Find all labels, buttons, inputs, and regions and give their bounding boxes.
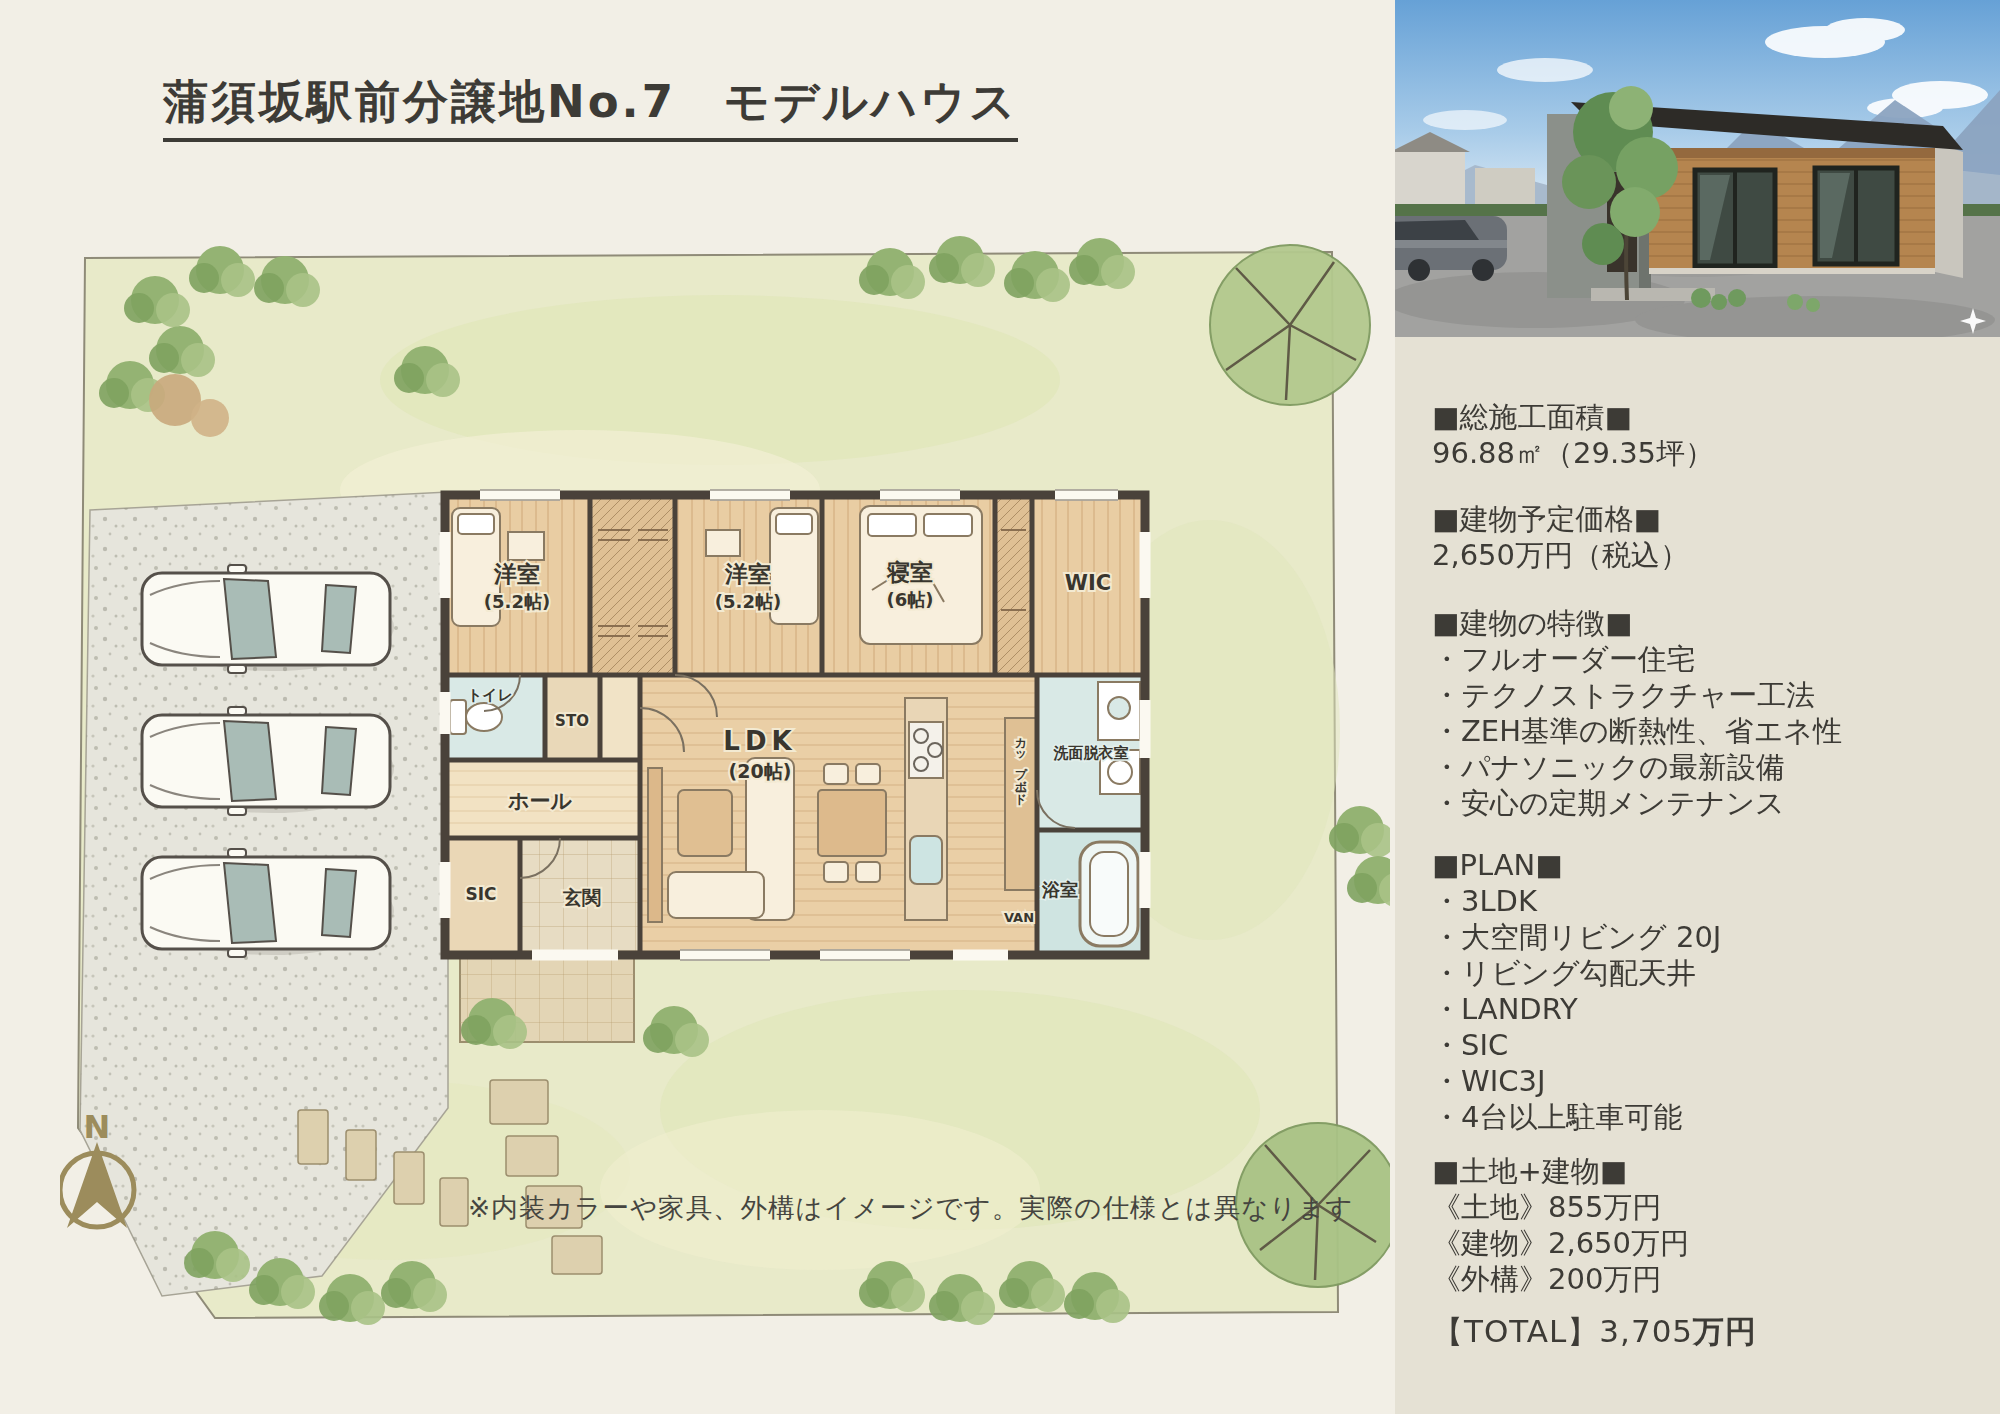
total-price: 【TOTAL】3,705万円 — [1432, 1313, 1972, 1349]
section-features: ■建物の特徴■ ・フルオーダー住宅 ・テクノストラクチャー工法 ・ZEH基準の断… — [1432, 605, 1972, 821]
car-1 — [142, 565, 394, 673]
site-plan-illustration: 洋室 (5.2帖) 洋室 (5.2帖) 寝室 (6帖) WIC トイレ STO … — [60, 230, 1390, 1335]
property-info: ■総施工面積■ 96.88㎡（29.35坪） ■建物予定価格■ 2,650万円（… — [1395, 337, 2000, 1349]
land-price: 《土地》855万円 — [1432, 1189, 1972, 1225]
section-plan: ■PLAN■ ・3LDK ・大空間リビング 20J ・リビング勾配天井 ・LAN… — [1432, 847, 1972, 1135]
desk-2 — [706, 530, 740, 556]
toilet-bowl — [466, 703, 502, 731]
section-heading: ■PLAN■ — [1432, 847, 1972, 883]
photo-window-1 — [1695, 170, 1775, 266]
flyer-page: 蒲須坂駅前分譲地No.7 モデルハウス — [0, 0, 2000, 1414]
room-label-van: VAN — [1004, 910, 1034, 925]
plan-item: ・リビング勾配天井 — [1432, 955, 1972, 991]
desk-1 — [508, 532, 544, 560]
section-heading: ■土地+建物■ — [1432, 1153, 1972, 1189]
disclaimer-note: ※内装カラーや家具、外構はイメージです。実際の仕様とは異なります — [468, 1190, 1354, 1226]
plan-item: ・LANDRY — [1432, 991, 1972, 1027]
room-label-bath: 浴室 — [1041, 879, 1078, 900]
plan-item: ・4台以上駐車可能 — [1432, 1099, 1972, 1135]
section-heading: ■建物の特徴■ — [1432, 605, 1972, 641]
room-label-entrance: 玄関 — [562, 886, 601, 908]
coffee-table — [678, 790, 732, 856]
feature-item: ・テクノストラクチャー工法 — [1432, 677, 1972, 713]
room-label-toilet: トイレ — [467, 686, 513, 704]
building-price: 《建物》2,650万円 — [1432, 1225, 1972, 1261]
feature-item: ・ZEH基準の断熱性、省エネ性 — [1432, 713, 1972, 749]
total-prefix: 【TOTAL】3,705 — [1432, 1313, 1693, 1349]
room-label-ldk: LDK — [723, 726, 796, 756]
kitchen-sink — [910, 836, 942, 884]
room-label-sic: SIC — [465, 884, 496, 904]
site-plan-svg: 洋室 (5.2帖) 洋室 (5.2帖) 寝室 (6帖) WIC トイレ STO … — [60, 230, 1390, 1335]
feature-item: ・パナソニックの最新設備 — [1432, 749, 1972, 785]
toilet-tank — [450, 700, 466, 734]
total-area-value: 96.88㎡（29.35坪） — [1432, 435, 1972, 471]
section-building-price: ■建物予定価格■ 2,650万円（税込） — [1432, 501, 1972, 573]
section-heading: ■建物予定価格■ — [1432, 501, 1972, 537]
room-label-sto: STO — [555, 712, 589, 730]
room-size-master: (6帖) — [887, 589, 934, 610]
sofa-seat — [668, 872, 764, 918]
big-tree-top-right — [1210, 245, 1370, 405]
room-label-cupboard: カップボード — [1014, 730, 1028, 806]
car-2 — [142, 707, 394, 815]
tv-board — [648, 768, 662, 922]
room-label-bedroom2: 洋室 — [724, 561, 771, 587]
dining-table — [818, 790, 886, 856]
room-size-ldk: (20帖) — [729, 760, 792, 782]
house-photo — [1395, 0, 2000, 337]
building-price-value: 2,650万円（税込） — [1432, 537, 1972, 573]
room-label-hall: ホール — [507, 789, 572, 813]
plan-item: ・大空間リビング 20J — [1432, 919, 1972, 955]
room-label-master: 寝室 — [886, 559, 933, 585]
plan-item: ・WIC3J — [1432, 1063, 1972, 1099]
info-sidebar: ■総施工面積■ 96.88㎡（29.35坪） ■建物予定価格■ 2,650万円（… — [1395, 0, 2000, 1414]
section-total-area: ■総施工面積■ 96.88㎡（29.35坪） — [1432, 399, 1972, 471]
page-title: 蒲須坂駅前分譲地No.7 モデルハウス — [163, 76, 1018, 142]
room-label-washroom: 洗面脱衣室 — [1053, 744, 1129, 762]
room-label-wic: WIC — [1065, 571, 1111, 595]
house-floorplan: 洋室 (5.2帖) 洋室 (5.2帖) 寝室 (6帖) WIC トイレ STO … — [445, 490, 1145, 960]
plan-item: ・SIC — [1432, 1027, 1972, 1063]
room-label-bedroom1: 洋室 — [493, 561, 540, 587]
plan-item: ・3LDK — [1432, 883, 1972, 919]
compass-n-label: N — [84, 1108, 111, 1146]
feature-item: ・フルオーダー住宅 — [1432, 641, 1972, 677]
exterior-price: 《外構》200万円 — [1432, 1261, 1972, 1297]
total-suffix: 万円 — [1693, 1313, 1757, 1349]
section-heading: ■総施工面積■ — [1432, 399, 1972, 435]
section-land-building: ■土地+建物■ 《土地》855万円 《建物》2,650万円 《外構》200万円 — [1432, 1153, 1972, 1297]
room-size-bedroom2: (5.2帖) — [715, 591, 781, 612]
car-3 — [142, 849, 394, 957]
photo-window-2 — [1815, 168, 1897, 264]
feature-item: ・安心の定期メンテナンス — [1432, 785, 1972, 821]
room-size-bedroom1: (5.2帖) — [484, 591, 550, 612]
